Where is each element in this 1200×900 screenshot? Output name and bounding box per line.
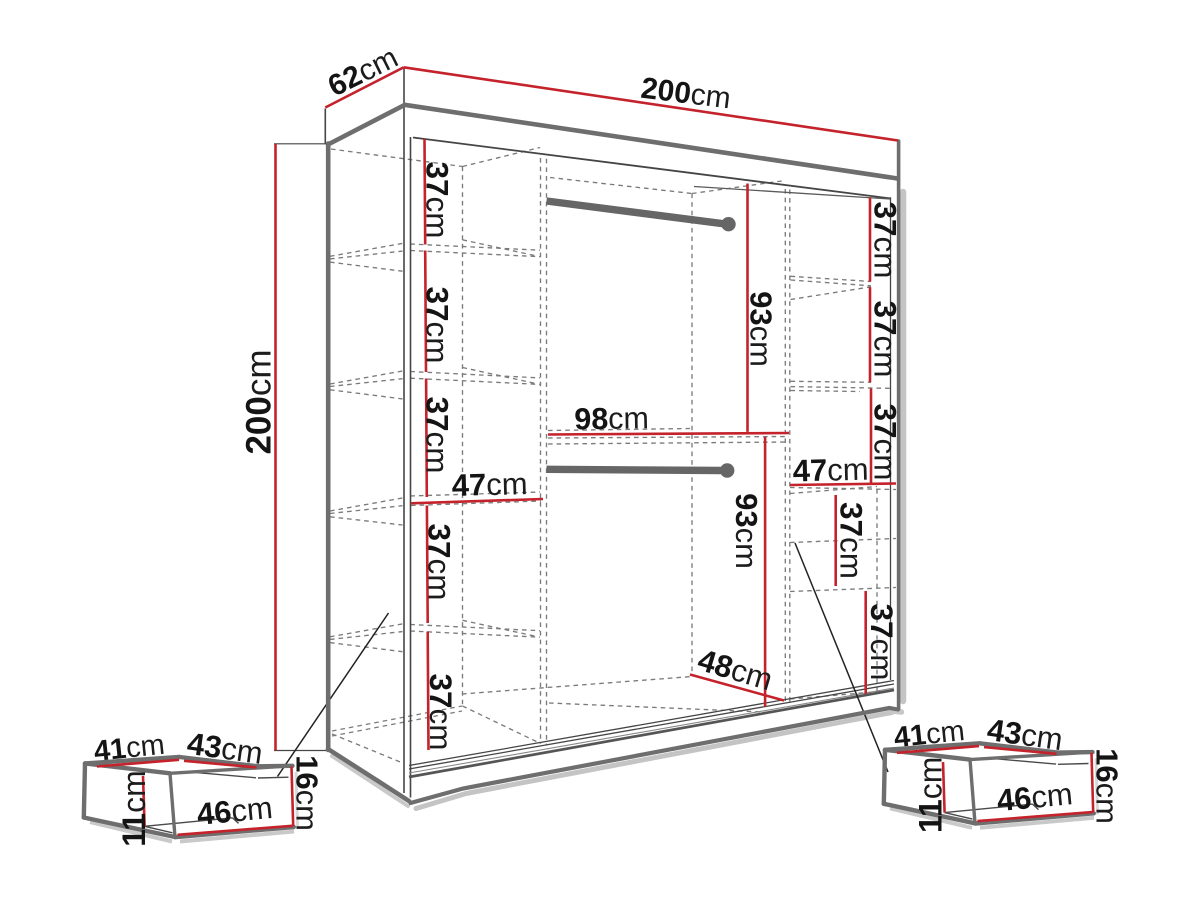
svg-text:11cm: 11cm xyxy=(116,770,152,846)
svg-text:93cm: 93cm xyxy=(744,291,779,367)
svg-text:16cm: 16cm xyxy=(290,755,325,831)
svg-text:37cm: 37cm xyxy=(423,673,459,750)
svg-text:37cm: 37cm xyxy=(864,603,900,680)
svg-text:93cm: 93cm xyxy=(729,493,764,569)
svg-text:37cm: 37cm xyxy=(422,523,458,600)
svg-text:37cm: 37cm xyxy=(868,201,904,278)
svg-text:11cm: 11cm xyxy=(913,757,949,833)
svg-text:37cm: 37cm xyxy=(834,502,870,579)
svg-text:37cm: 37cm xyxy=(868,300,904,377)
svg-text:46cm: 46cm xyxy=(995,776,1074,818)
svg-text:46cm: 46cm xyxy=(195,790,274,832)
svg-text:98cm: 98cm xyxy=(574,401,649,436)
svg-text:37cm: 37cm xyxy=(868,403,904,480)
svg-text:37cm: 37cm xyxy=(420,286,456,363)
svg-text:47cm: 47cm xyxy=(451,466,528,503)
svg-text:16cm: 16cm xyxy=(1090,748,1125,824)
svg-text:37cm: 37cm xyxy=(420,396,456,473)
svg-text:200cm: 200cm xyxy=(240,349,279,454)
svg-text:47cm: 47cm xyxy=(792,452,869,489)
svg-text:37cm: 37cm xyxy=(420,161,456,238)
